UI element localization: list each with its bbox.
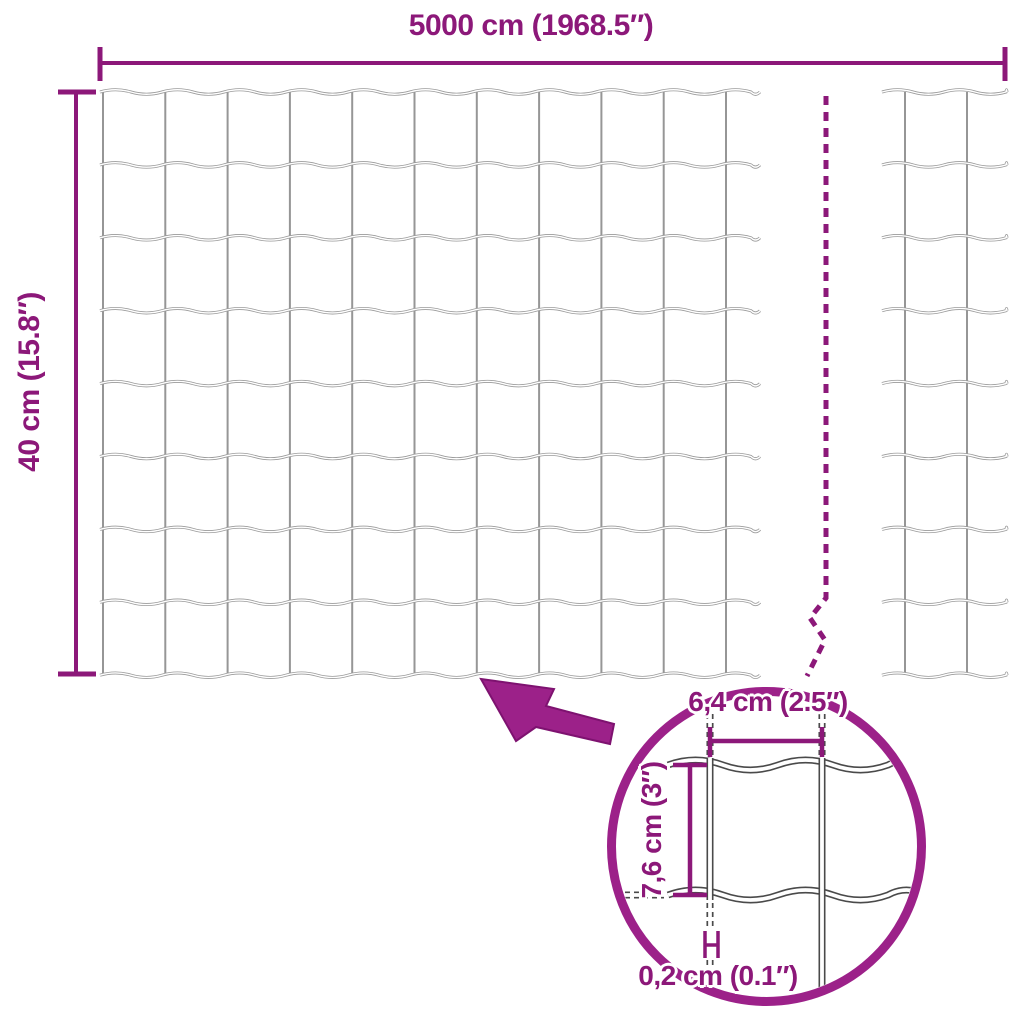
detail-wire-thickness-label: 0,2 cm (0.1″) [638, 960, 797, 992]
detail-mesh-height-label: 7,6 cm (3″) [636, 761, 668, 898]
total-height-dimension-line [58, 92, 96, 674]
detail-mesh-width-label: 6,4 cm (2.5″) [688, 686, 847, 718]
total-width-dimension-label: 5000 cm (1968.5″) [409, 9, 653, 43]
mesh-grid-main [100, 90, 760, 678]
diagram-graphics [0, 0, 1024, 1024]
mesh-grid-right [882, 90, 1007, 678]
total-width-dimension-line [100, 47, 1005, 81]
detail-pointer-arrow-icon [481, 679, 614, 744]
product-dimension-diagram: 5000 cm (1968.5″) 40 cm (15.8″) 6,4 cm (… [0, 0, 1024, 1024]
total-height-dimension-label: 40 cm (15.8″) [13, 292, 47, 472]
break-line-icon [807, 96, 826, 676]
